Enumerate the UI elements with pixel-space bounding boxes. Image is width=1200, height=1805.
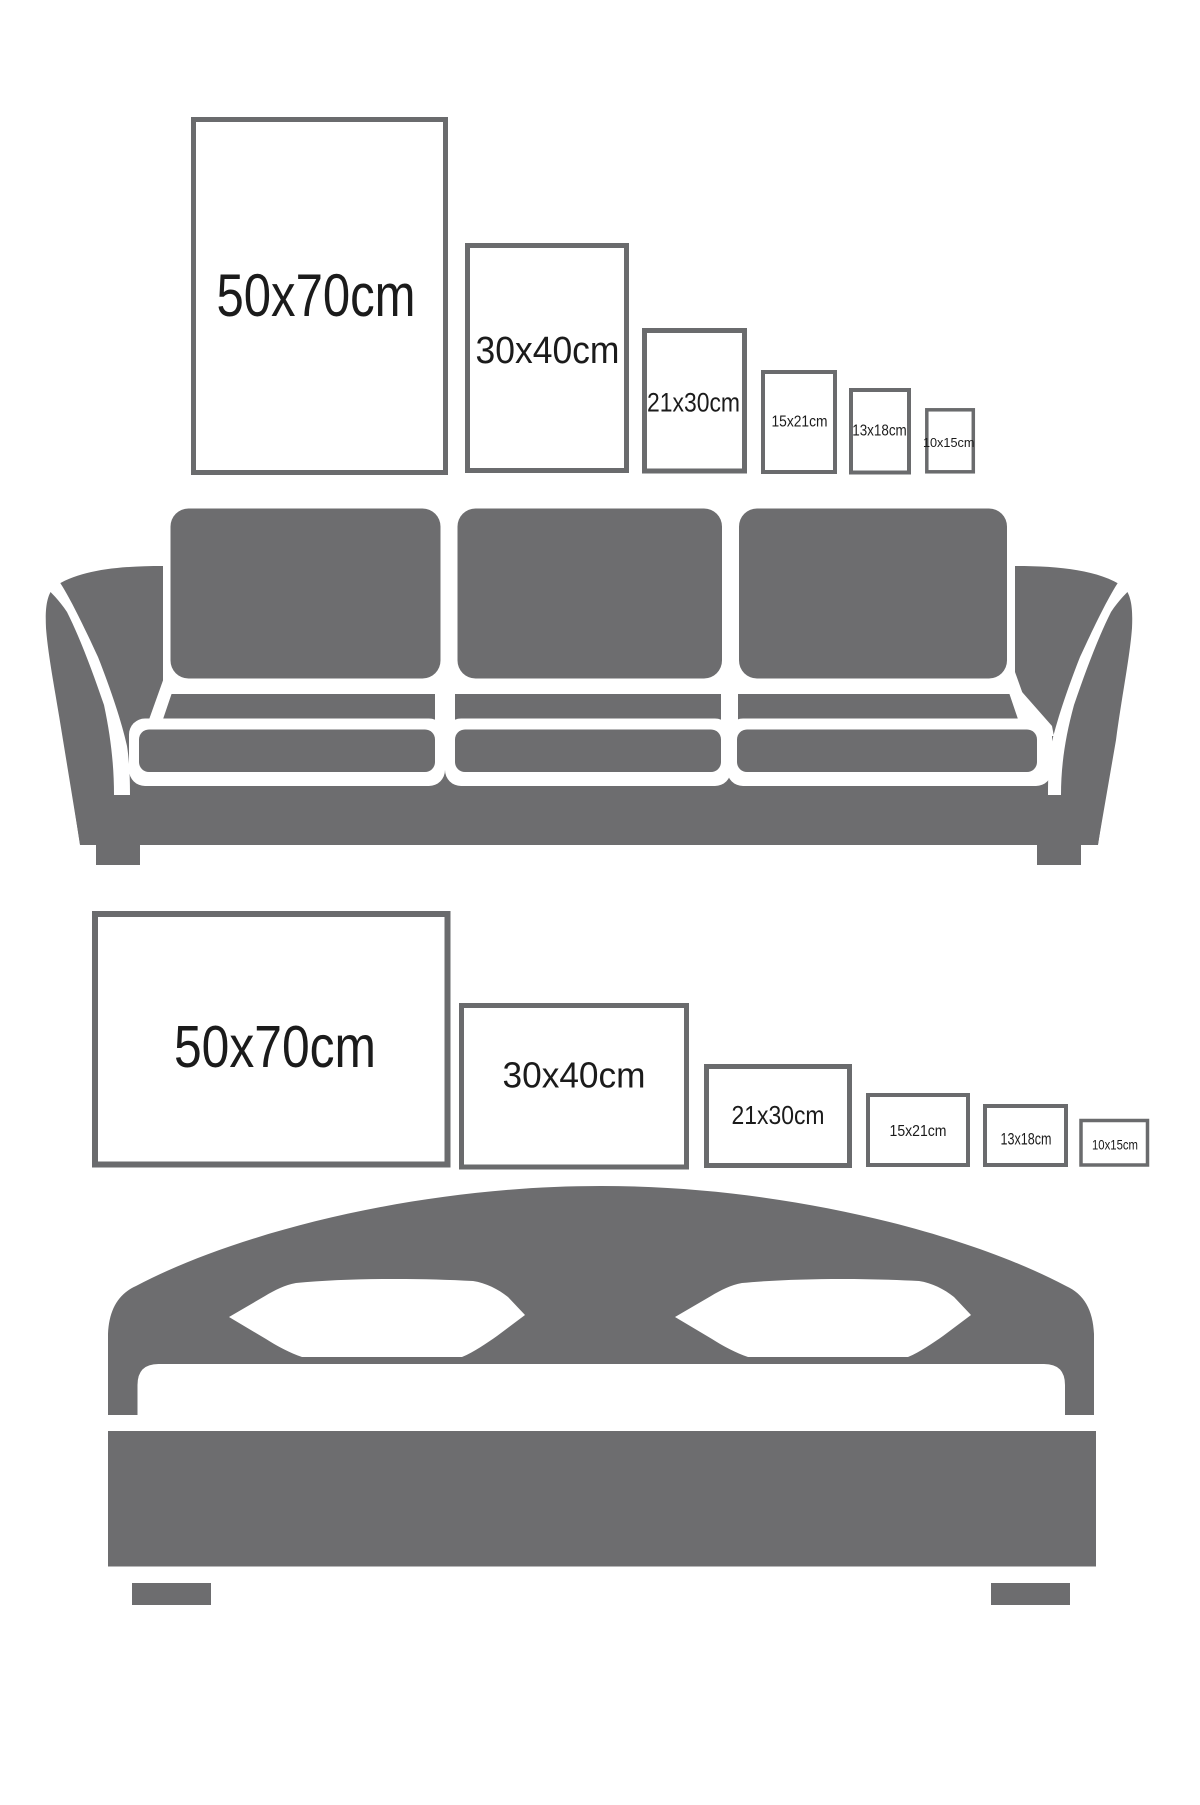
svg-text:21x30cm: 21x30cm xyxy=(732,1100,825,1130)
svg-text:10x15cm: 10x15cm xyxy=(1092,1137,1138,1153)
svg-text:15x21cm: 15x21cm xyxy=(772,414,828,431)
svg-text:13x18cm: 13x18cm xyxy=(852,423,907,440)
svg-text:30x40cm: 30x40cm xyxy=(503,1055,646,1096)
svg-text:13x18cm: 13x18cm xyxy=(1001,1130,1052,1149)
svg-text:50x70cm: 50x70cm xyxy=(174,1014,376,1080)
svg-text:30x40cm: 30x40cm xyxy=(476,330,620,372)
svg-text:15x21cm: 15x21cm xyxy=(890,1123,947,1140)
svg-text:21x30cm: 21x30cm xyxy=(647,388,740,418)
svg-text:50x70cm: 50x70cm xyxy=(217,262,416,329)
svg-text:10x15cm: 10x15cm xyxy=(923,435,975,450)
